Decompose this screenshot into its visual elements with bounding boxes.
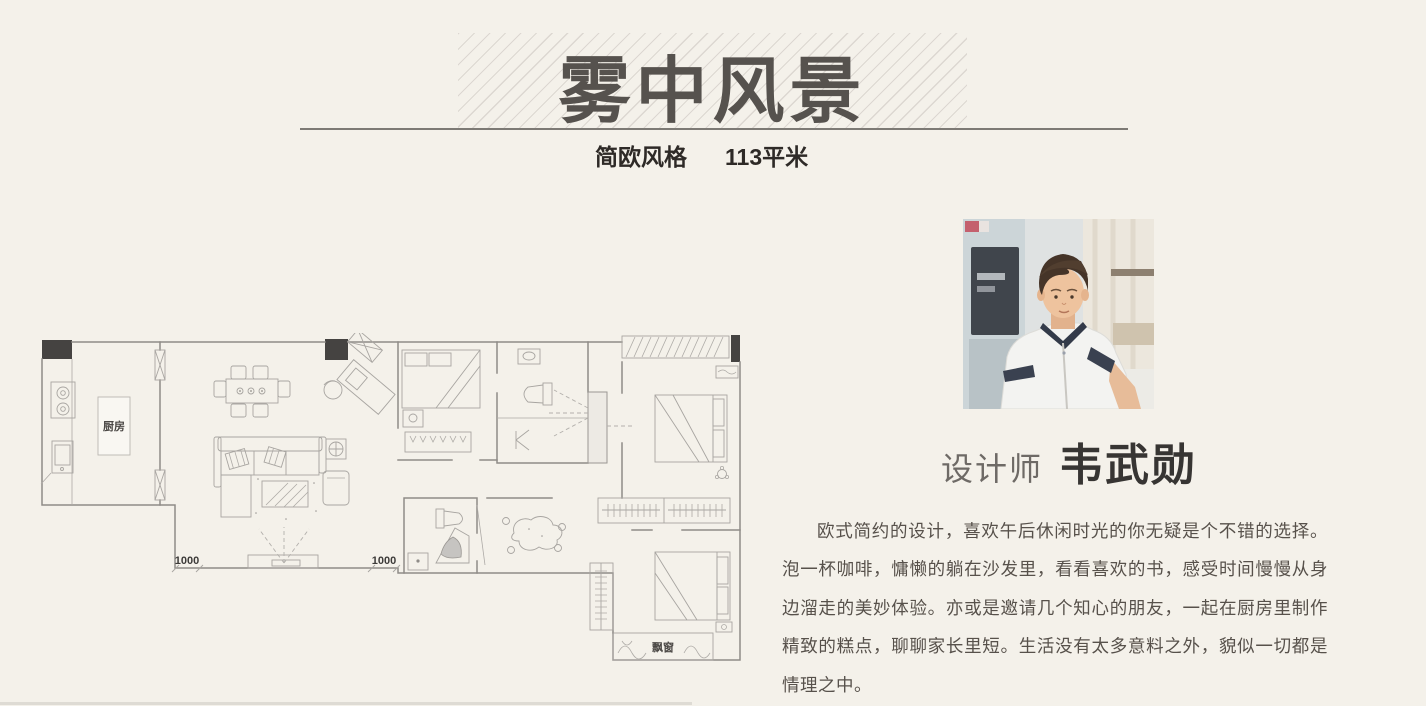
designer-photo-image <box>963 219 1154 409</box>
designer-role-label: 设计师 <box>941 444 1043 490</box>
dimension-label-left: 1000 <box>175 555 199 567</box>
description-paragraph: 欧式简约的设计，喜欢午后休闲时光的你无疑是个不错的选择。泡一杯咖啡，慵懒的躺在沙… <box>782 512 1328 705</box>
case-page: 雾中风景 简欧风格 113平米 <box>0 0 1426 706</box>
title-underline <box>300 128 1128 130</box>
dimension-label-right: 1000 <box>372 555 396 567</box>
designer-row: 设计师 韦武勋 <box>941 429 1197 493</box>
designer-name: 韦武勋 <box>1059 429 1197 493</box>
floor-plan: 厨房 <box>32 333 742 663</box>
floor-plan-drawing: 厨房 <box>32 333 742 663</box>
bottom-divider <box>0 702 692 705</box>
subtitle-row: 简欧风格 113平米 <box>595 138 808 172</box>
page-title: 雾中风景 <box>458 36 967 132</box>
designer-photo <box>963 219 1154 409</box>
bay-window-label: 飘窗 <box>652 640 674 654</box>
style-label: 简欧风格 <box>595 138 687 172</box>
area-label: 113平米 <box>725 138 808 172</box>
kitchen-label: 厨房 <box>103 419 125 433</box>
